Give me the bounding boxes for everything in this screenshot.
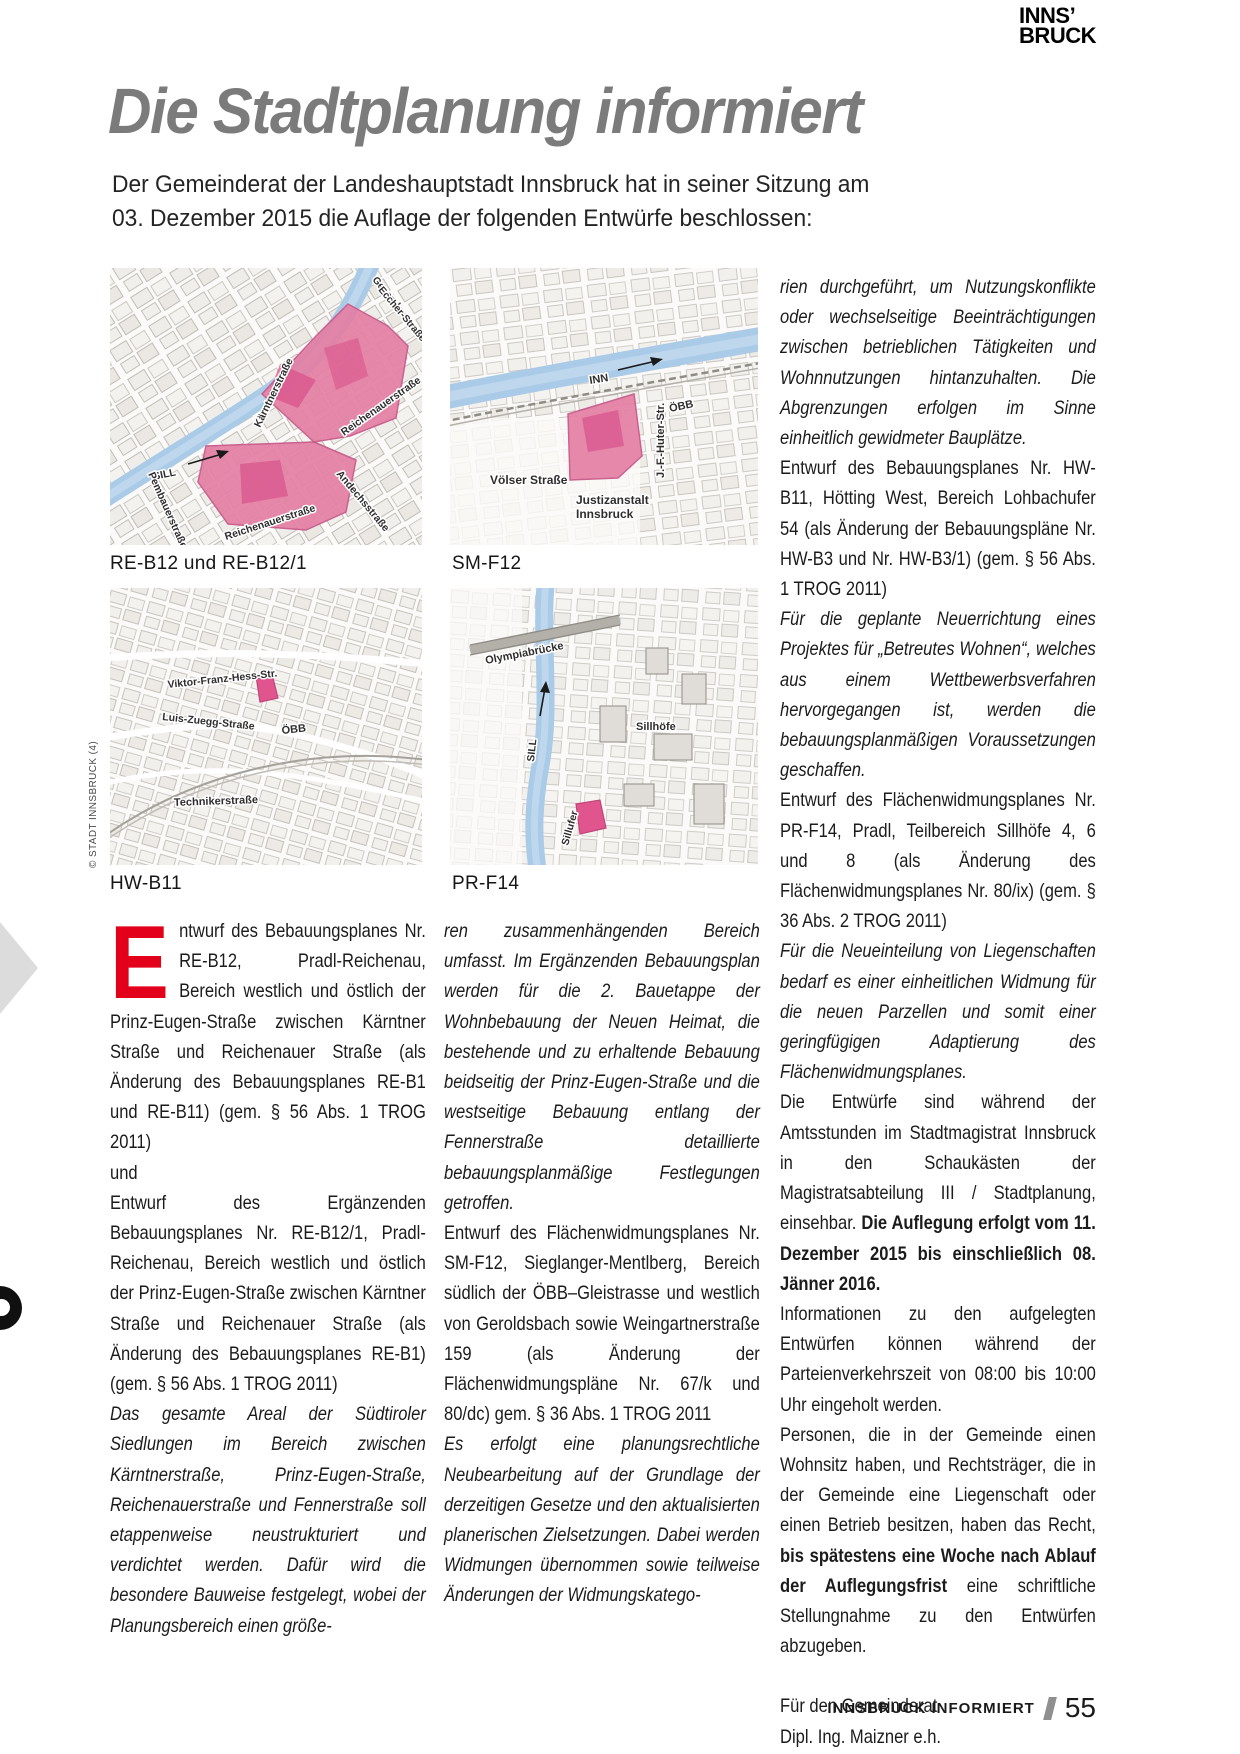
text-column-3: rien durchgeführt, um Nutzungskonflikte … (780, 272, 1096, 1754)
logo-line-2: BRUCK (1019, 23, 1096, 48)
signature-line-2: Dipl. Ing. Maizner e.h. (780, 1722, 1096, 1752)
intro-line-2: 03. Dezember 2015 die Auflage der folgen… (112, 202, 912, 236)
page-title: Die Stadtplanung informiert (108, 74, 862, 148)
map-caption: SM-F12 (452, 553, 521, 575)
map-sm-f12: INN ÖBB Völser Straße J.-F.-Huter-Str. J… (450, 268, 758, 545)
paragraph: Personen, die in der Gemeinde einen Wohn… (780, 1420, 1096, 1662)
paragraph: Für die geplante Neuerrichtung eines Pro… (780, 604, 1096, 785)
railway-label: ÖBB (281, 721, 307, 736)
intro-text: Der Gemeinderat der Landeshauptstadt Inn… (112, 168, 912, 236)
map-re-b12: General- Eccher-Straße Kärntnerstraße Re… (110, 268, 422, 545)
paragraph: Es erfolgt eine planungsrechtliche Neube… (444, 1429, 760, 1610)
place-label: Justizanstalt (576, 493, 649, 507)
paragraph: ren zusammenhängenden Bereich umfasst. I… (444, 916, 760, 1218)
paragraph: rien durchgeführt, um Nutzungskonflikte … (780, 272, 1096, 453)
paragraph: Entwurf des Flächenwidmungsplanes Nr. SM… (444, 1218, 760, 1429)
paragraph: Für die Neueinteilung von Liegenschaften… (780, 936, 1096, 1087)
paragraph: und (110, 1158, 426, 1188)
paragraph: Entwurf des Ergänzenden Bebauungsplanes … (110, 1188, 426, 1399)
street-label: Völser Straße (490, 473, 568, 487)
map-re-b12-canvas: General- Eccher-Straße Kärntnerstraße Re… (110, 268, 422, 545)
paragraph: Das gesamte Areal der Südtiroler Siedlun… (110, 1399, 426, 1641)
text-column-2: ren zusammenhängenden Bereich umfasst. I… (444, 916, 760, 1611)
footer-slash-icon (1043, 1697, 1057, 1720)
street-label: J.-F.-Huter-Str. (655, 403, 667, 478)
river-label: SILL (525, 738, 539, 762)
map-caption: RE-B12 und RE-B12/1 (110, 553, 307, 575)
plan-area-highlight (576, 800, 606, 834)
place-label: Innsbruck (576, 507, 634, 521)
page-footer: INNSBRUCK INFORMIERT 55 (827, 1692, 1096, 1724)
magazine-page: INNS’ BRUCK Die Stadtplanung informiert … (0, 0, 1240, 1754)
map-hw-b11-canvas: Viktor-Franz-Hess-Str. Luis-Zuegg-Straße… (110, 588, 422, 865)
page-number: 55 (1065, 1692, 1096, 1724)
map-sm-f12-canvas: INN ÖBB Völser Straße J.-F.-Huter-Str. J… (450, 268, 758, 545)
page-edge-tab (0, 1286, 22, 1330)
innsbruck-logo: INNS’ BRUCK (1019, 6, 1096, 46)
text-column-1: Entwurf des Bebauungsplanes Nr. RE-B12, … (110, 916, 426, 1641)
map-pr-f14-canvas: Olympiabrücke SILL Sillhöfe Sillufer (450, 588, 758, 865)
place-label: Sillhöfe (636, 721, 676, 733)
map-pr-f14: Olympiabrücke SILL Sillhöfe Sillufer (450, 588, 758, 865)
paragraph: Informationen zu den aufgelegten Entwürf… (780, 1299, 1096, 1420)
map-hw-b11: Viktor-Franz-Hess-Str. Luis-Zuegg-Straße… (110, 588, 422, 865)
paragraph: Entwurf des Flächenwidmungsplanes Nr. PR… (780, 785, 1096, 936)
paragraph: Entwurf des Bebauungsplanes Nr. RE-B12, … (110, 916, 426, 1158)
page-edge-triangle (0, 922, 38, 1014)
map-caption: PR-F14 (452, 873, 519, 895)
map-caption: HW-B11 (110, 873, 182, 895)
paragraph: Die Entwürfe sind während der Amtsstunde… (780, 1087, 1096, 1298)
photo-credit: © STADT INNSBRUCK (4) (88, 741, 99, 868)
paragraph: Entwurf des Bebauungsplanes Nr. HW-B11, … (780, 453, 1096, 604)
column-3-paragraphs: rien durchgeführt, um Nutzungskonflikte … (780, 272, 1096, 1661)
magazine-name: INNSBRUCK INFORMIERT (827, 1700, 1035, 1717)
intro-line-1: Der Gemeinderat der Landeshauptstadt Inn… (112, 168, 912, 202)
